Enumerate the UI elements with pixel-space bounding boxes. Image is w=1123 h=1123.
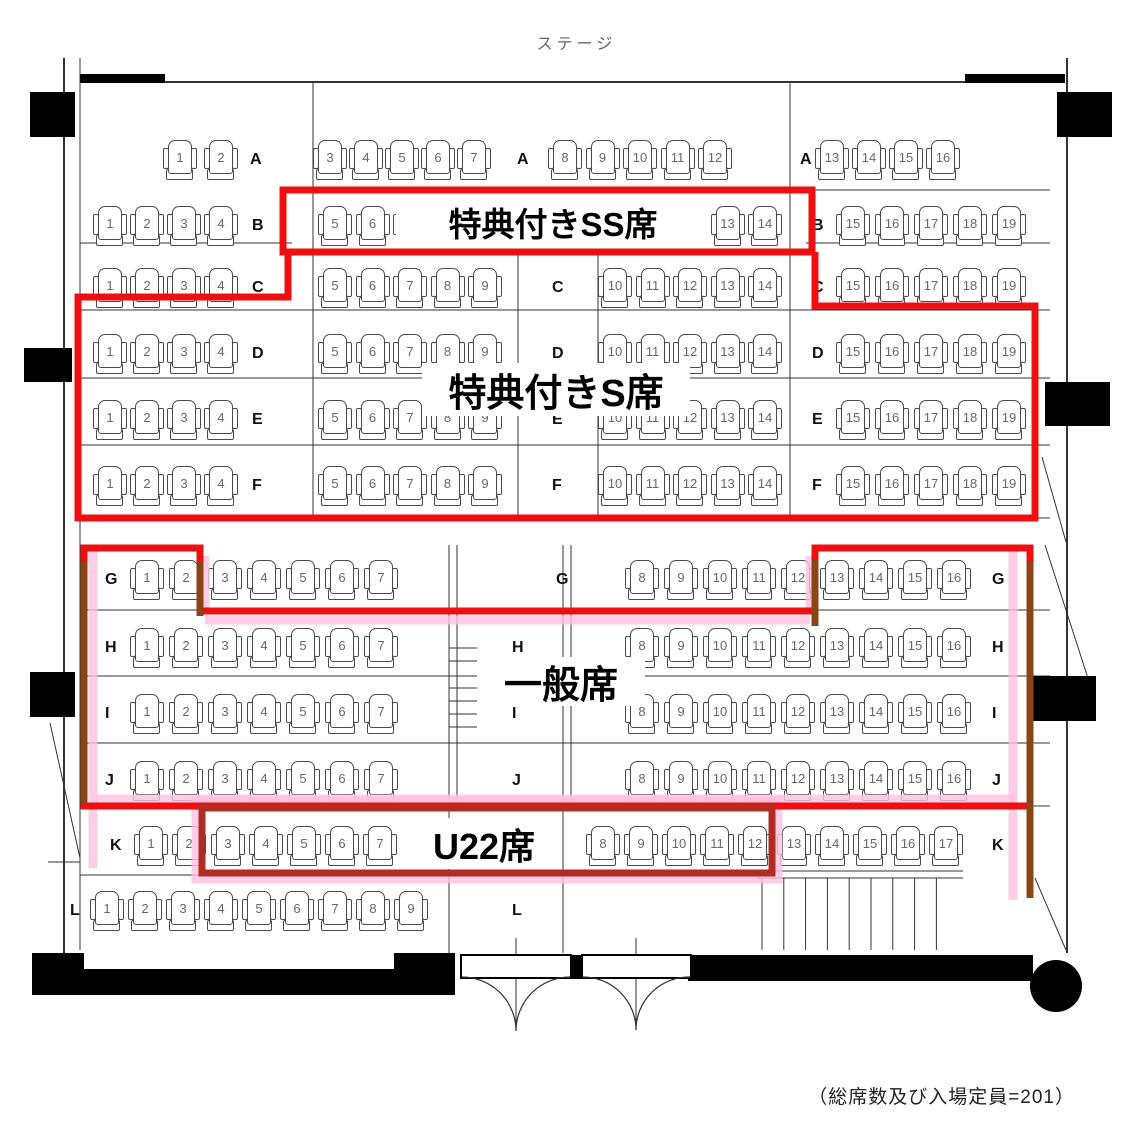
seat-number: 1 <box>135 761 159 795</box>
seat-F-13[interactable]: 13 <box>713 466 743 508</box>
seat-J-9[interactable]: 9 <box>666 761 696 803</box>
seat-C-11[interactable]: 11 <box>638 268 668 310</box>
seat-number: 11 <box>641 466 665 500</box>
seat-K-6[interactable]: 6 <box>327 826 357 868</box>
seat-number: 12 <box>743 826 767 860</box>
seat-K-3[interactable]: 3 <box>213 826 243 868</box>
seat-I-4[interactable]: 4 <box>249 694 279 736</box>
seat-E-18[interactable]: 18 <box>955 400 985 442</box>
seat-number: 1 <box>135 628 159 662</box>
seat-F-1[interactable]: 1 <box>95 466 125 508</box>
seat-F-3[interactable]: 3 <box>169 466 199 508</box>
seat-E-7[interactable]: 7 <box>395 400 425 442</box>
seat-number: 9 <box>473 466 497 500</box>
seat-F-10[interactable]: 10 <box>600 466 630 508</box>
seat-C-5[interactable]: 5 <box>320 268 350 310</box>
seat-F-15[interactable]: 15 <box>838 466 868 508</box>
seat-H-4[interactable]: 4 <box>249 628 279 670</box>
seat-number: 12 <box>678 268 702 302</box>
seat-number: 4 <box>209 206 233 240</box>
seat-number: 16 <box>942 560 966 594</box>
seat-number: 8 <box>591 826 615 860</box>
seat-number: 6 <box>330 628 354 662</box>
seat-D-3[interactable]: 3 <box>169 334 199 376</box>
seat-C-3[interactable]: 3 <box>169 268 199 310</box>
seat-B-3[interactable]: 3 <box>169 206 199 248</box>
seat-number: 7 <box>369 761 393 795</box>
seat-C-10[interactable]: 10 <box>600 268 630 310</box>
seat-E-3[interactable]: 3 <box>169 400 199 442</box>
seat-B-14[interactable]: 14 <box>750 206 780 248</box>
seat-number: 15 <box>841 466 865 500</box>
seat-B-13[interactable]: 13 <box>713 206 743 248</box>
seat-D-4[interactable]: 4 <box>206 334 236 376</box>
seat-E-14[interactable]: 14 <box>750 400 780 442</box>
seat-I-11[interactable]: 11 <box>744 694 774 736</box>
row-letter-B: B <box>252 217 264 235</box>
seat-G-1[interactable]: 1 <box>132 560 162 602</box>
seat-A-16[interactable]: 16 <box>928 140 958 182</box>
seat-D-17[interactable]: 17 <box>916 334 946 376</box>
seat-K-5[interactable]: 5 <box>289 826 319 868</box>
seat-number: 14 <box>864 761 888 795</box>
seat-A-14[interactable]: 14 <box>854 140 884 182</box>
seat-number: 13 <box>825 628 849 662</box>
seat-number: 19 <box>997 334 1021 368</box>
seat-E-15[interactable]: 15 <box>838 400 868 442</box>
row-letter-F: F <box>252 477 262 495</box>
row-letter-K: K <box>992 837 1004 855</box>
row-letter-I: I <box>992 705 996 723</box>
seat-C-4[interactable]: 4 <box>206 268 236 310</box>
seat-F-16[interactable]: 16 <box>877 466 907 508</box>
seat-H-16[interactable]: 16 <box>939 628 969 670</box>
seat-number: 3 <box>172 206 196 240</box>
seat-number: 5 <box>291 560 315 594</box>
seat-A-15[interactable]: 15 <box>891 140 921 182</box>
seat-D-14[interactable]: 14 <box>750 334 780 376</box>
seat-number: 14 <box>820 826 844 860</box>
seat-B-4[interactable]: 4 <box>206 206 236 248</box>
seat-number: 13 <box>820 140 844 174</box>
seat-number: 6 <box>361 466 385 500</box>
seat-number: 15 <box>841 206 865 240</box>
seat-number: 19 <box>997 466 1021 500</box>
row-letter-G: G <box>105 571 117 589</box>
seat-number: 18 <box>958 268 982 302</box>
seat-number: 9 <box>669 761 693 795</box>
seat-number: 16 <box>880 334 904 368</box>
seat-J-4[interactable]: 4 <box>249 761 279 803</box>
seat-number: 13 <box>716 206 740 240</box>
seat-G-14[interactable]: 14 <box>861 560 891 602</box>
seat-number: 6 <box>330 694 354 728</box>
seat-E-6[interactable]: 6 <box>358 400 388 442</box>
seat-L-5[interactable]: 5 <box>244 891 274 933</box>
seat-A-1[interactable]: 1 <box>165 140 195 182</box>
seat-I-15[interactable]: 15 <box>900 694 930 736</box>
seat-number: 13 <box>716 268 740 302</box>
seat-number: 1 <box>135 560 159 594</box>
seat-A-4[interactable]: 4 <box>351 140 381 182</box>
seat-number: 6 <box>361 334 385 368</box>
seat-E-19[interactable]: 19 <box>994 400 1024 442</box>
seat-C-6[interactable]: 6 <box>358 268 388 310</box>
seat-F-8[interactable]: 8 <box>433 466 463 508</box>
stage-label: ステージ <box>30 30 1123 54</box>
seat-G-2[interactable]: 2 <box>171 560 201 602</box>
seat-J-6[interactable]: 6 <box>327 761 357 803</box>
row-letter-F: F <box>812 477 822 495</box>
row-letter-F: F <box>552 477 562 495</box>
seat-L-7[interactable]: 7 <box>320 891 350 933</box>
seat-F-2[interactable]: 2 <box>132 466 162 508</box>
seat-F-7[interactable]: 7 <box>395 466 425 508</box>
seat-number: 2 <box>174 628 198 662</box>
seat-A-3[interactable]: 3 <box>315 140 345 182</box>
seat-number: 7 <box>398 400 422 434</box>
seat-F-6[interactable]: 6 <box>358 466 388 508</box>
seat-number: 8 <box>436 466 460 500</box>
seat-I-16[interactable]: 16 <box>939 694 969 736</box>
seat-J-14[interactable]: 14 <box>861 761 891 803</box>
seat-G-10[interactable]: 10 <box>705 560 735 602</box>
seat-E-2[interactable]: 2 <box>132 400 162 442</box>
seat-number: 18 <box>958 206 982 240</box>
seating-chart: ステージ 12345678910111213141516AAA123456789… <box>0 0 1123 1123</box>
seat-E-13[interactable]: 13 <box>713 400 743 442</box>
seat-K-15[interactable]: 15 <box>855 826 885 868</box>
seat-C-2[interactable]: 2 <box>132 268 162 310</box>
seat-number: 15 <box>841 268 865 302</box>
row-letter-J: J <box>512 772 521 790</box>
seat-J-5[interactable]: 5 <box>288 761 318 803</box>
seat-number: 5 <box>323 334 347 368</box>
seat-C-16[interactable]: 16 <box>877 268 907 310</box>
seat-number: 7 <box>462 140 486 174</box>
seat-J-10[interactable]: 10 <box>705 761 735 803</box>
seat-I-2[interactable]: 2 <box>171 694 201 736</box>
seat-number: 1 <box>98 268 122 302</box>
seat-K-1[interactable]: 1 <box>136 826 166 868</box>
seat-J-15[interactable]: 15 <box>900 761 930 803</box>
seat-number: 7 <box>323 891 347 925</box>
seat-B-18[interactable]: 18 <box>955 206 985 248</box>
zone-label-general: 一般席 <box>477 657 645 706</box>
seat-I-7[interactable]: 7 <box>366 694 396 736</box>
seat-B-15[interactable]: 15 <box>838 206 868 248</box>
seat-K-11[interactable]: 11 <box>702 826 732 868</box>
seat-H-14[interactable]: 14 <box>861 628 891 670</box>
seat-K-4[interactable]: 4 <box>251 826 281 868</box>
seat-number: 2 <box>135 466 159 500</box>
seat-B-17[interactable]: 17 <box>916 206 946 248</box>
seat-C-15[interactable]: 15 <box>838 268 868 310</box>
seat-D-6[interactable]: 6 <box>358 334 388 376</box>
seat-F-5[interactable]: 5 <box>320 466 350 508</box>
seat-F-18[interactable]: 18 <box>955 466 985 508</box>
seat-J-12[interactable]: 12 <box>783 761 813 803</box>
seat-C-19[interactable]: 19 <box>994 268 1024 310</box>
seat-A-9[interactable]: 9 <box>588 140 618 182</box>
seat-K-14[interactable]: 14 <box>817 826 847 868</box>
seat-number: 16 <box>942 761 966 795</box>
seat-B-6[interactable]: 6 <box>358 206 388 248</box>
seat-number: 14 <box>857 140 881 174</box>
seat-D-13[interactable]: 13 <box>713 334 743 376</box>
seat-K-12[interactable]: 12 <box>740 826 770 868</box>
seat-I-3[interactable]: 3 <box>210 694 240 736</box>
seat-number: 14 <box>864 560 888 594</box>
row-letter-H: H <box>105 639 117 657</box>
seat-number: 18 <box>958 400 982 434</box>
seat-F-14[interactable]: 14 <box>750 466 780 508</box>
seat-C-18[interactable]: 18 <box>955 268 985 310</box>
seat-number: 15 <box>894 140 918 174</box>
seat-L-3[interactable]: 3 <box>168 891 198 933</box>
seat-D-1[interactable]: 1 <box>95 334 125 376</box>
zone-label-s: 特典付きS席 <box>422 363 690 416</box>
seat-number: 2 <box>135 206 159 240</box>
seat-J-13[interactable]: 13 <box>822 761 852 803</box>
seat-G-7[interactable]: 7 <box>366 560 396 602</box>
seat-D-15[interactable]: 15 <box>838 334 868 376</box>
seat-number: 16 <box>931 140 955 174</box>
seat-number: 7 <box>368 826 392 860</box>
seat-number: 15 <box>903 560 927 594</box>
seat-number: 17 <box>919 466 943 500</box>
seat-number: 8 <box>630 761 654 795</box>
seat-C-7[interactable]: 7 <box>395 268 425 310</box>
seat-number: 10 <box>708 694 732 728</box>
seat-G-12[interactable]: 12 <box>783 560 813 602</box>
seat-A-7[interactable]: 7 <box>459 140 489 182</box>
seat-G-4[interactable]: 4 <box>249 560 279 602</box>
seat-D-2[interactable]: 2 <box>132 334 162 376</box>
seat-number: 12 <box>786 761 810 795</box>
seat-number: 5 <box>291 761 315 795</box>
seat-J-3[interactable]: 3 <box>210 761 240 803</box>
seat-number: 17 <box>919 400 943 434</box>
seat-G-13[interactable]: 13 <box>822 560 852 602</box>
seat-number: 15 <box>858 826 882 860</box>
seat-A-13[interactable]: 13 <box>817 140 847 182</box>
seat-K-7[interactable]: 7 <box>365 826 395 868</box>
seat-A-5[interactable]: 5 <box>387 140 417 182</box>
seat-I-13[interactable]: 13 <box>822 694 852 736</box>
seat-H-6[interactable]: 6 <box>327 628 357 670</box>
seat-J-16[interactable]: 16 <box>939 761 969 803</box>
seat-number: 13 <box>825 694 849 728</box>
seat-K-16[interactable]: 16 <box>893 826 923 868</box>
seat-number: 9 <box>399 891 423 925</box>
seat-F-17[interactable]: 17 <box>916 466 946 508</box>
seat-number: 3 <box>172 400 196 434</box>
seat-number: 4 <box>354 140 378 174</box>
seat-I-5[interactable]: 5 <box>288 694 318 736</box>
seat-number: 10 <box>603 466 627 500</box>
seat-C-14[interactable]: 14 <box>750 268 780 310</box>
seat-number: 11 <box>705 826 729 860</box>
seat-number: 18 <box>958 466 982 500</box>
seat-number: 1 <box>135 694 159 728</box>
seat-L-2[interactable]: 2 <box>130 891 160 933</box>
seat-G-9[interactable]: 9 <box>666 560 696 602</box>
seat-number: 12 <box>703 140 727 174</box>
seat-L-4[interactable]: 4 <box>206 891 236 933</box>
seat-I-12[interactable]: 12 <box>783 694 813 736</box>
seat-number: 2 <box>133 891 157 925</box>
seat-E-17[interactable]: 17 <box>916 400 946 442</box>
seat-number: 1 <box>98 466 122 500</box>
seat-F-12[interactable]: 12 <box>675 466 705 508</box>
seat-number: 17 <box>934 826 958 860</box>
seat-J-1[interactable]: 1 <box>132 761 162 803</box>
seat-B-5[interactable]: 5 <box>320 206 350 248</box>
seat-number: 5 <box>292 826 316 860</box>
seat-number: 2 <box>174 560 198 594</box>
seat-number: 2 <box>135 268 159 302</box>
seat-A-2[interactable]: 2 <box>206 140 236 182</box>
seat-B-1[interactable]: 1 <box>95 206 125 248</box>
seat-A-6[interactable]: 6 <box>423 140 453 182</box>
seat-A-12[interactable]: 12 <box>700 140 730 182</box>
seat-J-8[interactable]: 8 <box>627 761 657 803</box>
seat-E-1[interactable]: 1 <box>95 400 125 442</box>
seat-I-10[interactable]: 10 <box>705 694 735 736</box>
seat-G-16[interactable]: 16 <box>939 560 969 602</box>
seat-F-9[interactable]: 9 <box>470 466 500 508</box>
seat-H-5[interactable]: 5 <box>288 628 318 670</box>
seat-number: 8 <box>361 891 385 925</box>
seat-H-13[interactable]: 13 <box>822 628 852 670</box>
seat-G-8[interactable]: 8 <box>627 560 657 602</box>
seat-A-10[interactable]: 10 <box>625 140 655 182</box>
seat-F-11[interactable]: 11 <box>638 466 668 508</box>
seat-J-2[interactable]: 2 <box>171 761 201 803</box>
seat-E-16[interactable]: 16 <box>877 400 907 442</box>
seat-K-9[interactable]: 9 <box>626 826 656 868</box>
seat-number: 15 <box>841 400 865 434</box>
seat-K-17[interactable]: 17 <box>931 826 961 868</box>
seat-D-19[interactable]: 19 <box>994 334 1024 376</box>
seat-C-8[interactable]: 8 <box>433 268 463 310</box>
seat-number: 10 <box>708 560 732 594</box>
seat-H-10[interactable]: 10 <box>705 628 735 670</box>
seat-number: 1 <box>98 400 122 434</box>
seat-I-1[interactable]: 1 <box>132 694 162 736</box>
seat-B-16[interactable]: 16 <box>877 206 907 248</box>
seat-number: 11 <box>666 140 690 174</box>
seat-H-15[interactable]: 15 <box>900 628 930 670</box>
seat-K-8[interactable]: 8 <box>588 826 618 868</box>
seat-number: 19 <box>997 400 1021 434</box>
row-letter-J: J <box>105 772 114 790</box>
seat-H-11[interactable]: 11 <box>744 628 774 670</box>
seat-number: 6 <box>361 268 385 302</box>
seat-F-4[interactable]: 4 <box>206 466 236 508</box>
seat-B-2[interactable]: 2 <box>132 206 162 248</box>
seat-number: 5 <box>291 694 315 728</box>
seat-number: 2 <box>174 761 198 795</box>
seat-G-15[interactable]: 15 <box>900 560 930 602</box>
seat-number: 14 <box>753 334 777 368</box>
seat-H-1[interactable]: 1 <box>132 628 162 670</box>
seat-D-16[interactable]: 16 <box>877 334 907 376</box>
seat-K-2[interactable]: 2 <box>174 826 204 868</box>
seat-H-12[interactable]: 12 <box>783 628 813 670</box>
seat-number: 4 <box>209 268 233 302</box>
seat-number: 11 <box>641 268 665 302</box>
seat-number: 13 <box>716 466 740 500</box>
seat-number: 9 <box>669 628 693 662</box>
seat-D-7[interactable]: 7 <box>395 334 425 376</box>
seat-number: 10 <box>667 826 691 860</box>
seat-number: 14 <box>753 400 777 434</box>
seat-H-3[interactable]: 3 <box>210 628 240 670</box>
seat-number: 4 <box>252 694 276 728</box>
seat-number: 16 <box>942 694 966 728</box>
seat-D-18[interactable]: 18 <box>955 334 985 376</box>
seat-C-12[interactable]: 12 <box>675 268 705 310</box>
seat-H-7[interactable]: 7 <box>366 628 396 670</box>
seat-G-5[interactable]: 5 <box>288 560 318 602</box>
seat-K-10[interactable]: 10 <box>664 826 694 868</box>
seat-J-7[interactable]: 7 <box>366 761 396 803</box>
seat-C-13[interactable]: 13 <box>713 268 743 310</box>
seat-number: 2 <box>209 140 233 174</box>
seat-H-9[interactable]: 9 <box>666 628 696 670</box>
row-letter-A: A <box>250 151 262 169</box>
seat-number: 7 <box>369 560 393 594</box>
seat-A-11[interactable]: 11 <box>663 140 693 182</box>
row-letter-B: B <box>812 217 824 235</box>
seat-C-17[interactable]: 17 <box>916 268 946 310</box>
seat-F-19[interactable]: 19 <box>994 466 1024 508</box>
seat-L-1[interactable]: 1 <box>92 891 122 933</box>
seat-number: 12 <box>786 628 810 662</box>
seat-E-4[interactable]: 4 <box>206 400 236 442</box>
seat-D-5[interactable]: 5 <box>320 334 350 376</box>
seat-A-8[interactable]: 8 <box>550 140 580 182</box>
seat-I-9[interactable]: 9 <box>666 694 696 736</box>
seat-G-3[interactable]: 3 <box>210 560 240 602</box>
seat-C-1[interactable]: 1 <box>95 268 125 310</box>
seat-G-6[interactable]: 6 <box>327 560 357 602</box>
seat-J-11[interactable]: 11 <box>744 761 774 803</box>
seat-number: 6 <box>330 560 354 594</box>
seat-number: 3 <box>318 140 342 174</box>
seat-G-11[interactable]: 11 <box>744 560 774 602</box>
seat-E-5[interactable]: 5 <box>320 400 350 442</box>
seat-L-8[interactable]: 8 <box>358 891 388 933</box>
zone-label-u22: U22席 <box>417 818 551 869</box>
seat-number: 9 <box>669 694 693 728</box>
seat-L-6[interactable]: 6 <box>282 891 312 933</box>
seat-number: 19 <box>997 206 1021 240</box>
seat-C-9[interactable]: 9 <box>470 268 500 310</box>
seat-number: 4 <box>209 334 233 368</box>
seat-number: 8 <box>630 560 654 594</box>
seat-number: 16 <box>942 628 966 662</box>
seat-H-2[interactable]: 2 <box>171 628 201 670</box>
seat-I-6[interactable]: 6 <box>327 694 357 736</box>
seat-L-9[interactable]: 9 <box>396 891 426 933</box>
seat-number: 11 <box>747 694 771 728</box>
seat-K-13[interactable]: 13 <box>779 826 809 868</box>
seat-I-14[interactable]: 14 <box>861 694 891 736</box>
seat-B-19[interactable]: 19 <box>994 206 1024 248</box>
